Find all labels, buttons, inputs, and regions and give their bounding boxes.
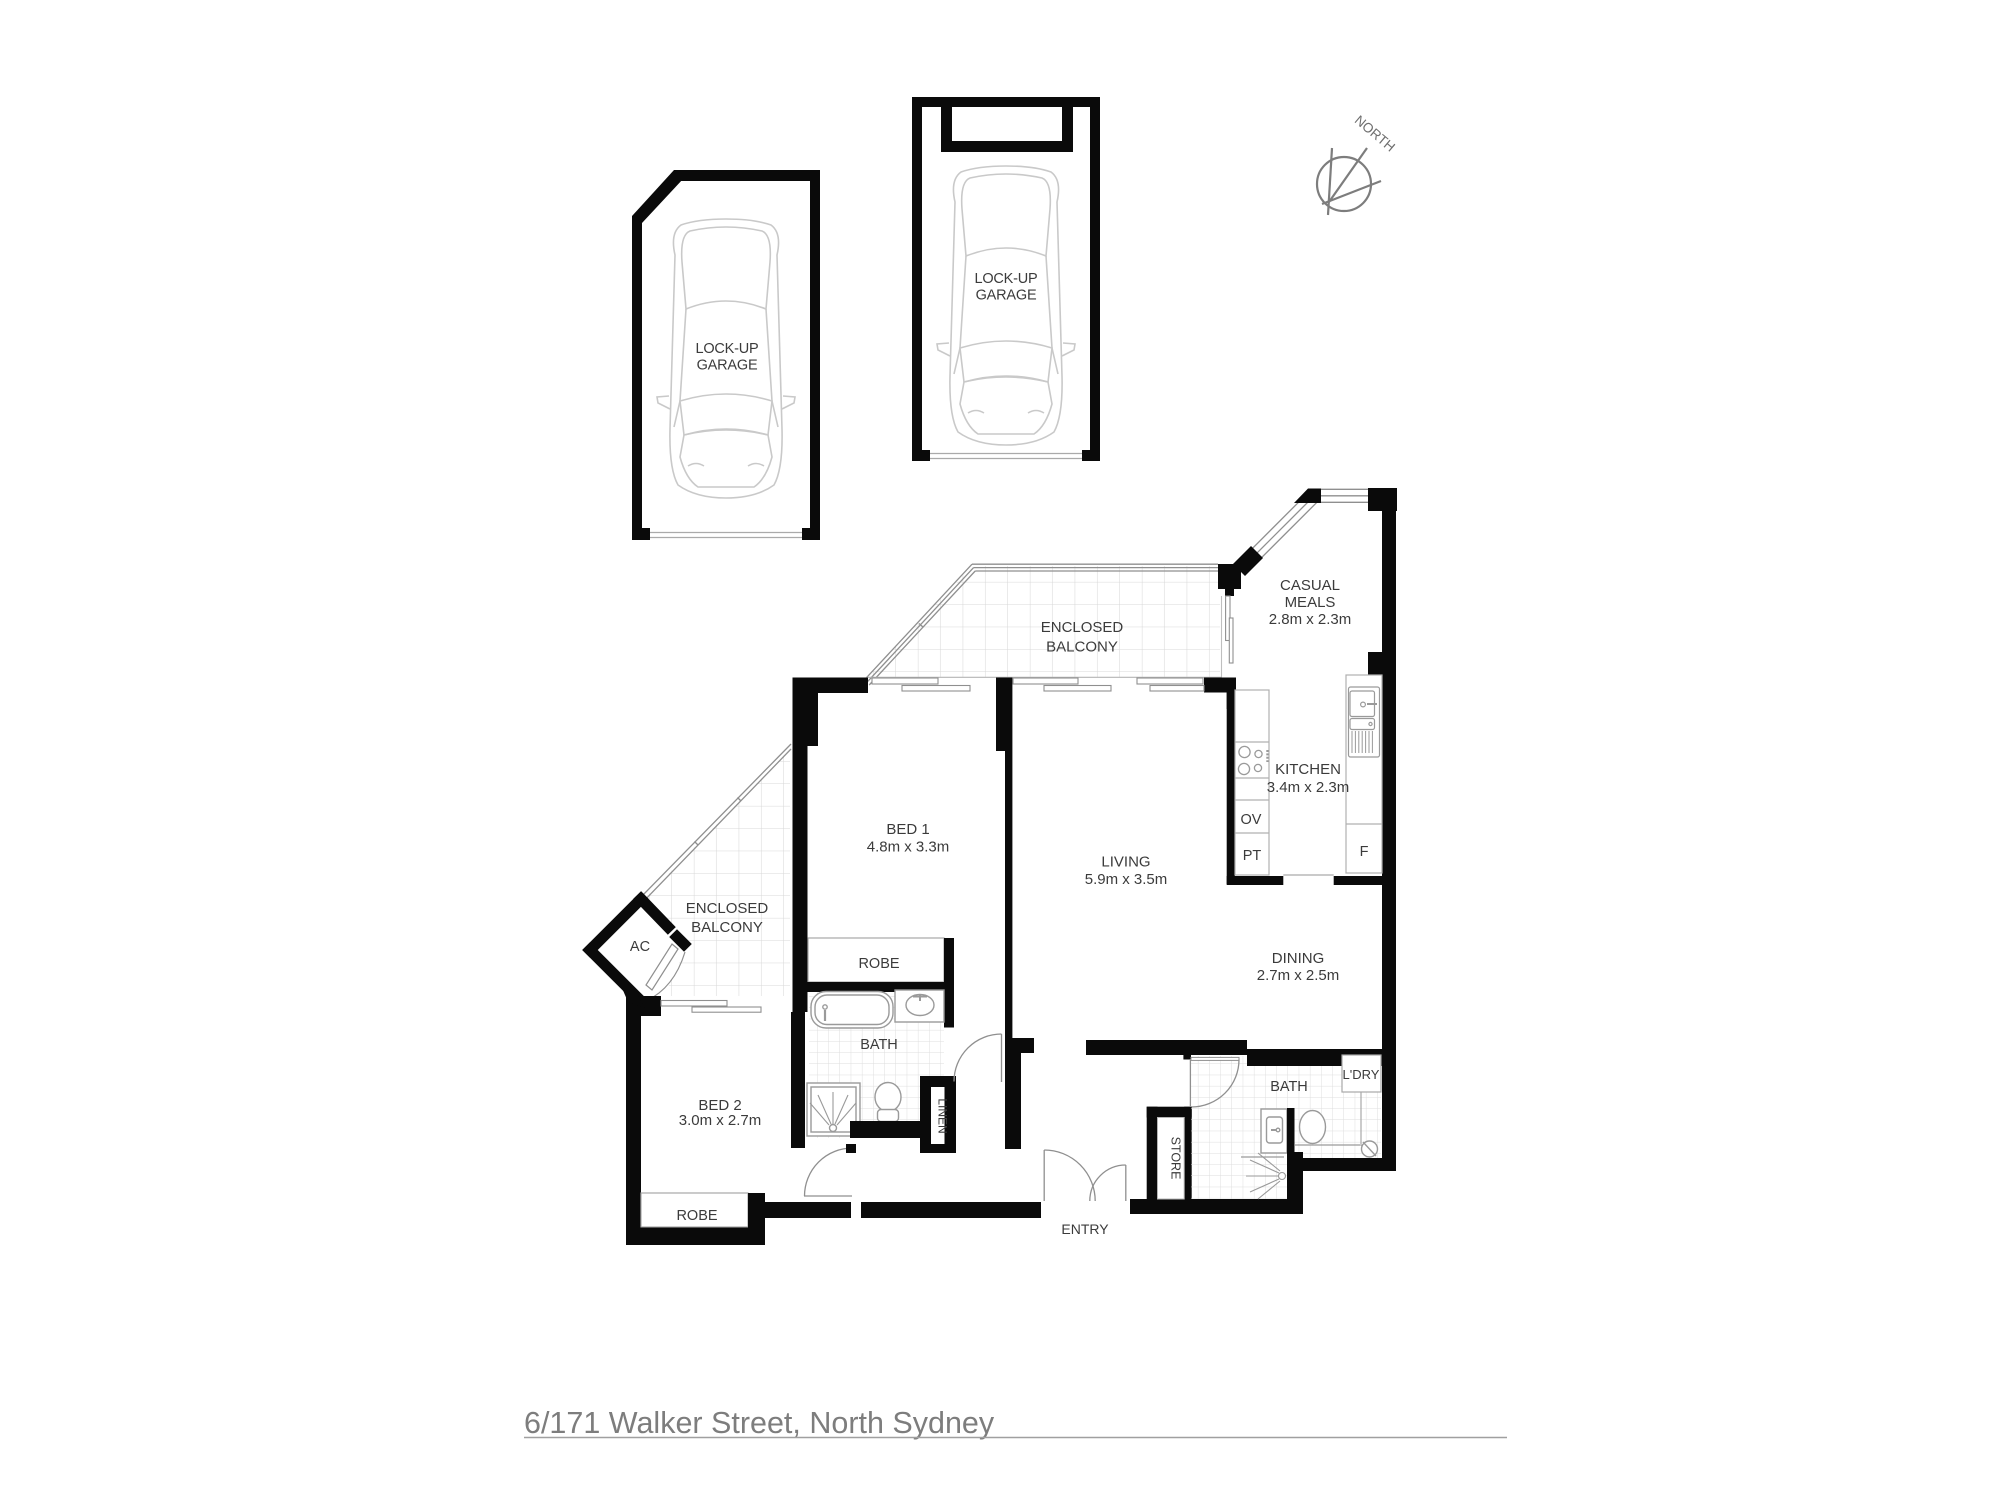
svg-text:OV: OV	[1241, 812, 1262, 828]
svg-text:2.8m x 2.3m: 2.8m x 2.3m	[1269, 611, 1352, 628]
svg-text:BATH: BATH	[1270, 1079, 1308, 1095]
svg-text:LIVING: LIVING	[1101, 854, 1150, 871]
svg-text:GARAGE: GARAGE	[976, 288, 1037, 304]
svg-text:BATH: BATH	[860, 1037, 898, 1053]
svg-text:ROBE: ROBE	[858, 956, 899, 972]
svg-text:DINING: DINING	[1272, 950, 1325, 967]
svg-text:6/171 Walker Street, North Syd: 6/171 Walker Street, North Sydney	[524, 1406, 995, 1440]
svg-text:BED 1: BED 1	[886, 821, 929, 838]
svg-text:ENCLOSED: ENCLOSED	[686, 900, 769, 917]
svg-text:F: F	[1360, 844, 1369, 860]
svg-text:ENTRY: ENTRY	[1061, 1221, 1109, 1237]
svg-text:STORE: STORE	[1169, 1137, 1183, 1180]
svg-text:PT: PT	[1243, 848, 1262, 864]
svg-text:BALCONY: BALCONY	[691, 919, 763, 936]
svg-text:CASUAL: CASUAL	[1280, 577, 1340, 594]
svg-text:BALCONY: BALCONY	[1046, 639, 1118, 656]
svg-text:AC: AC	[630, 939, 650, 955]
svg-text:3.4m x 2.3m: 3.4m x 2.3m	[1267, 779, 1350, 796]
svg-text:4.8m x 3.3m: 4.8m x 3.3m	[867, 839, 950, 856]
svg-text:L'DRY: L'DRY	[1343, 1067, 1380, 1082]
svg-text:3.0m x 2.7m: 3.0m x 2.7m	[679, 1112, 762, 1129]
svg-text:MEALS: MEALS	[1285, 594, 1336, 611]
svg-text:2.7m x 2.5m: 2.7m x 2.5m	[1257, 967, 1340, 984]
svg-text:LOCK-UP: LOCK-UP	[974, 271, 1037, 287]
svg-text:LINEN: LINEN	[936, 1098, 950, 1133]
svg-text:LOCK-UP: LOCK-UP	[695, 341, 758, 357]
svg-text:5.9m x 3.5m: 5.9m x 3.5m	[1085, 871, 1168, 888]
svg-text:ENCLOSED: ENCLOSED	[1041, 619, 1124, 636]
svg-text:GARAGE: GARAGE	[697, 358, 758, 374]
svg-text:KITCHEN: KITCHEN	[1275, 761, 1341, 778]
svg-text:ROBE: ROBE	[676, 1208, 717, 1224]
